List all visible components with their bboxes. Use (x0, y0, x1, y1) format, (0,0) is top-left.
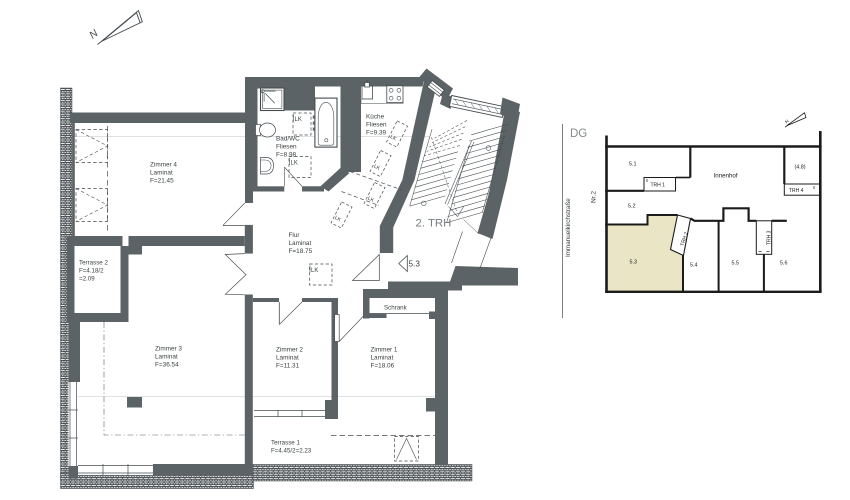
svg-text:Zimmer 2: Zimmer 2 (276, 347, 303, 354)
svg-text:F=18.75: F=18.75 (289, 248, 313, 255)
svg-text:Terrasse 2: Terrasse 2 (79, 260, 108, 267)
svg-text:F=18.06: F=18.06 (371, 363, 395, 370)
svg-text:F=9.39: F=9.39 (366, 130, 387, 137)
svg-text:5.2: 5.2 (628, 204, 636, 210)
svg-text:=2.09: =2.09 (79, 276, 95, 283)
svg-text:TRH 3: TRH 3 (767, 230, 773, 245)
svg-text:Laminat: Laminat (150, 170, 173, 177)
svg-text:Zimmer 3: Zimmer 3 (155, 346, 182, 353)
svg-text:LK: LK (389, 134, 398, 142)
svg-text:F=4.18/2: F=4.18/2 (79, 268, 104, 275)
svg-text:F=4.45/2=2.23: F=4.45/2=2.23 (271, 448, 312, 455)
svg-text:LK: LK (311, 268, 318, 274)
svg-text:N: N (784, 118, 790, 124)
svg-text:Laminat: Laminat (289, 240, 312, 247)
svg-text:LK: LK (366, 196, 375, 204)
svg-text:5.1: 5.1 (629, 162, 637, 168)
svg-text:DG: DG (570, 128, 587, 140)
svg-text:Laminat: Laminat (371, 355, 394, 362)
svg-text:(4.8): (4.8) (795, 165, 806, 171)
svg-text:5.5: 5.5 (732, 261, 740, 267)
svg-text:Fliesen: Fliesen (276, 144, 297, 151)
svg-text:Fliesen: Fliesen (366, 122, 387, 129)
svg-text:Laminat: Laminat (155, 354, 178, 361)
svg-text:F=8.98: F=8.98 (276, 152, 297, 159)
svg-text:F=11.31: F=11.31 (276, 363, 300, 370)
svg-text:Laminat: Laminat (276, 355, 299, 362)
svg-text:Zimmer 1: Zimmer 1 (371, 347, 398, 354)
svg-text:Flur: Flur (289, 232, 301, 239)
svg-text:LK: LK (295, 117, 302, 123)
svg-text:2. TRH: 2. TRH (416, 218, 452, 230)
svg-text:5.4: 5.4 (690, 262, 698, 268)
svg-text:Bad/WC: Bad/WC (276, 136, 300, 143)
svg-text:5.3: 5.3 (409, 260, 421, 269)
svg-text:TRH 1: TRH 1 (651, 182, 666, 188)
svg-text:Zimmer 4: Zimmer 4 (150, 162, 177, 169)
svg-text:5.3: 5.3 (630, 260, 638, 266)
svg-text:Innenhof: Innenhof (714, 173, 738, 180)
svg-text:F=21.45: F=21.45 (150, 178, 174, 185)
svg-text:LK: LK (291, 161, 298, 167)
svg-text:Terrasse 1: Terrasse 1 (271, 440, 300, 447)
svg-text:TRH 4: TRH 4 (789, 188, 804, 194)
svg-text:LK: LK (333, 215, 342, 223)
svg-text:LK: LK (372, 164, 381, 172)
svg-text:Immanuelkirchstraße: Immanuelkirchstraße (565, 198, 572, 257)
svg-text:5.6: 5.6 (780, 261, 788, 267)
svg-text:F=36.54: F=36.54 (155, 362, 179, 369)
svg-text:N: N (87, 27, 101, 41)
svg-text:Nr.2: Nr.2 (591, 191, 598, 203)
svg-text:Küche: Küche (366, 114, 385, 121)
svg-text:Schrank: Schrank (384, 305, 408, 312)
